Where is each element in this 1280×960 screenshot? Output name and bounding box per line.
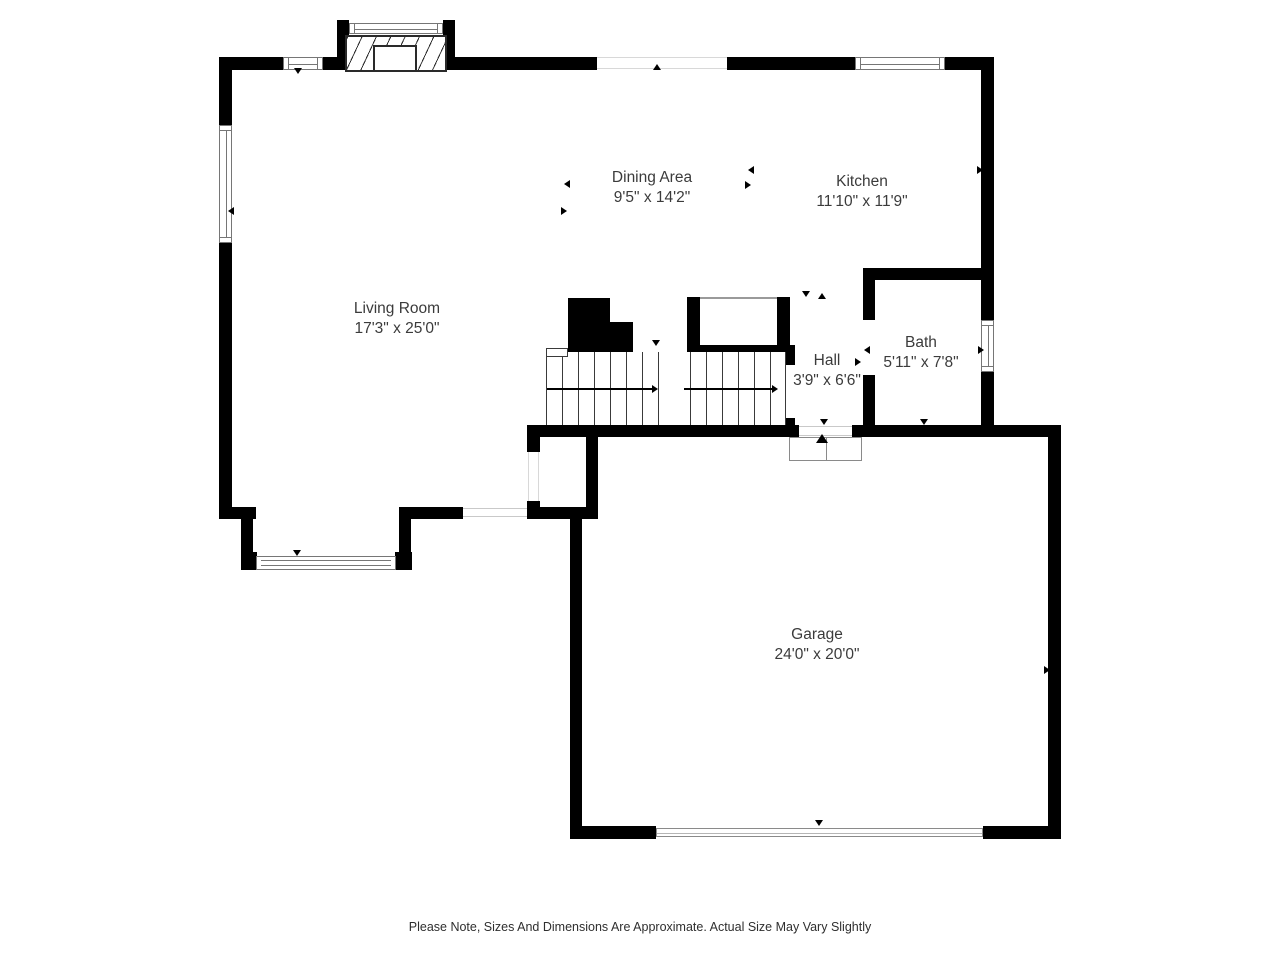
door-marker-icon xyxy=(978,346,984,354)
wall-segment xyxy=(570,826,656,839)
wall-segment xyxy=(852,425,1061,437)
floor-plan: Living Room 17'3" x 25'0" Dining Area 9'… xyxy=(0,0,1280,960)
wall-segment xyxy=(727,57,855,70)
wall-segment xyxy=(586,427,598,519)
door-marker-icon xyxy=(652,340,660,346)
door-marker-icon xyxy=(921,271,929,277)
room-label-garage: Garage 24'0" x 20'0" xyxy=(774,625,859,665)
door-marker-icon xyxy=(801,64,809,70)
opening-edge xyxy=(597,68,727,69)
stair-bottom-step xyxy=(546,348,568,357)
wall-segment xyxy=(981,57,994,320)
stair-landing xyxy=(663,352,684,425)
room-name: Bath xyxy=(883,333,958,353)
door-marker-icon xyxy=(816,434,828,443)
window-kitchen xyxy=(855,57,945,70)
stair-direction-line xyxy=(547,388,652,390)
wall-segment xyxy=(323,57,338,70)
door-marker-icon xyxy=(1044,666,1050,674)
wall-segment xyxy=(453,57,597,70)
room-name: Kitchen xyxy=(816,172,907,192)
window-bay xyxy=(256,556,396,570)
wall-segment xyxy=(687,297,700,353)
door-marker-icon xyxy=(818,293,826,299)
opening-edge xyxy=(463,508,527,509)
room-label-dining-area: Dining Area 9'5" x 14'2" xyxy=(612,168,692,208)
wall-segment xyxy=(1048,425,1061,839)
door-marker-icon xyxy=(653,64,661,70)
wall-segment xyxy=(863,268,875,320)
door-marker-icon xyxy=(575,666,581,674)
wall-segment xyxy=(219,243,232,519)
door-marker-icon xyxy=(564,180,570,188)
opening-edge xyxy=(597,57,727,58)
stair-arrow-icon xyxy=(772,385,778,393)
room-label-hall: Hall 3'9" x 6'6" xyxy=(793,351,861,391)
room-dimensions: 9'5" x 14'2" xyxy=(612,188,692,208)
opening-edge xyxy=(700,297,777,299)
stair-arrow-icon xyxy=(652,385,658,393)
window-left xyxy=(219,125,232,243)
opening-edge xyxy=(799,426,852,427)
fireplace-insert xyxy=(373,45,417,72)
door-marker-icon xyxy=(820,419,828,425)
room-dimensions: 17'3" x 25'0" xyxy=(354,319,440,339)
door-marker-icon xyxy=(228,207,234,215)
door-marker-icon xyxy=(802,291,810,297)
door-marker-icon xyxy=(561,207,567,215)
room-name: Living Room xyxy=(354,299,440,319)
wall-segment xyxy=(399,519,411,559)
room-name: Dining Area xyxy=(612,168,692,188)
wall-segment xyxy=(527,501,540,519)
door-marker-icon xyxy=(977,166,983,174)
door-marker-icon xyxy=(864,346,870,354)
wall-segment xyxy=(219,57,232,125)
door-marker-icon xyxy=(815,820,823,826)
room-dimensions: 5'11" x 7'8" xyxy=(883,353,958,373)
wall-segment xyxy=(983,826,1061,839)
opening-edge xyxy=(538,452,539,501)
opening-edge xyxy=(528,452,529,501)
door-marker-icon xyxy=(786,357,792,365)
room-label-living-room: Living Room 17'3" x 25'0" xyxy=(354,299,440,339)
wall-segment xyxy=(399,507,463,519)
wall-segment xyxy=(241,552,257,570)
door-marker-icon xyxy=(293,550,301,556)
room-dimensions: 3'9" x 6'6" xyxy=(793,371,861,391)
window-fireplace xyxy=(349,23,443,34)
room-label-kitchen: Kitchen 11'10" x 11'9" xyxy=(816,172,907,212)
wall-segment xyxy=(219,507,256,519)
door-marker-icon xyxy=(294,68,302,74)
room-name: Hall xyxy=(793,351,861,371)
opening-edge xyxy=(463,516,527,517)
stair-direction-line xyxy=(684,388,772,390)
garage-door xyxy=(656,828,983,837)
window-top-left xyxy=(283,57,323,70)
chimney-mass xyxy=(568,298,610,347)
room-label-bath: Bath 5'11" x 7'8" xyxy=(883,333,958,373)
room-dimensions: 24'0" x 20'0" xyxy=(774,645,859,665)
chimney-mass xyxy=(610,322,633,347)
door-marker-icon xyxy=(920,419,928,425)
room-name: Garage xyxy=(774,625,859,645)
door-marker-icon xyxy=(748,166,754,174)
door-marker-icon xyxy=(745,181,751,189)
wall-segment xyxy=(527,425,799,437)
room-dimensions: 11'10" x 11'9" xyxy=(816,192,907,212)
disclaimer-note: Please Note, Sizes And Dimensions Are Ap… xyxy=(0,920,1280,934)
